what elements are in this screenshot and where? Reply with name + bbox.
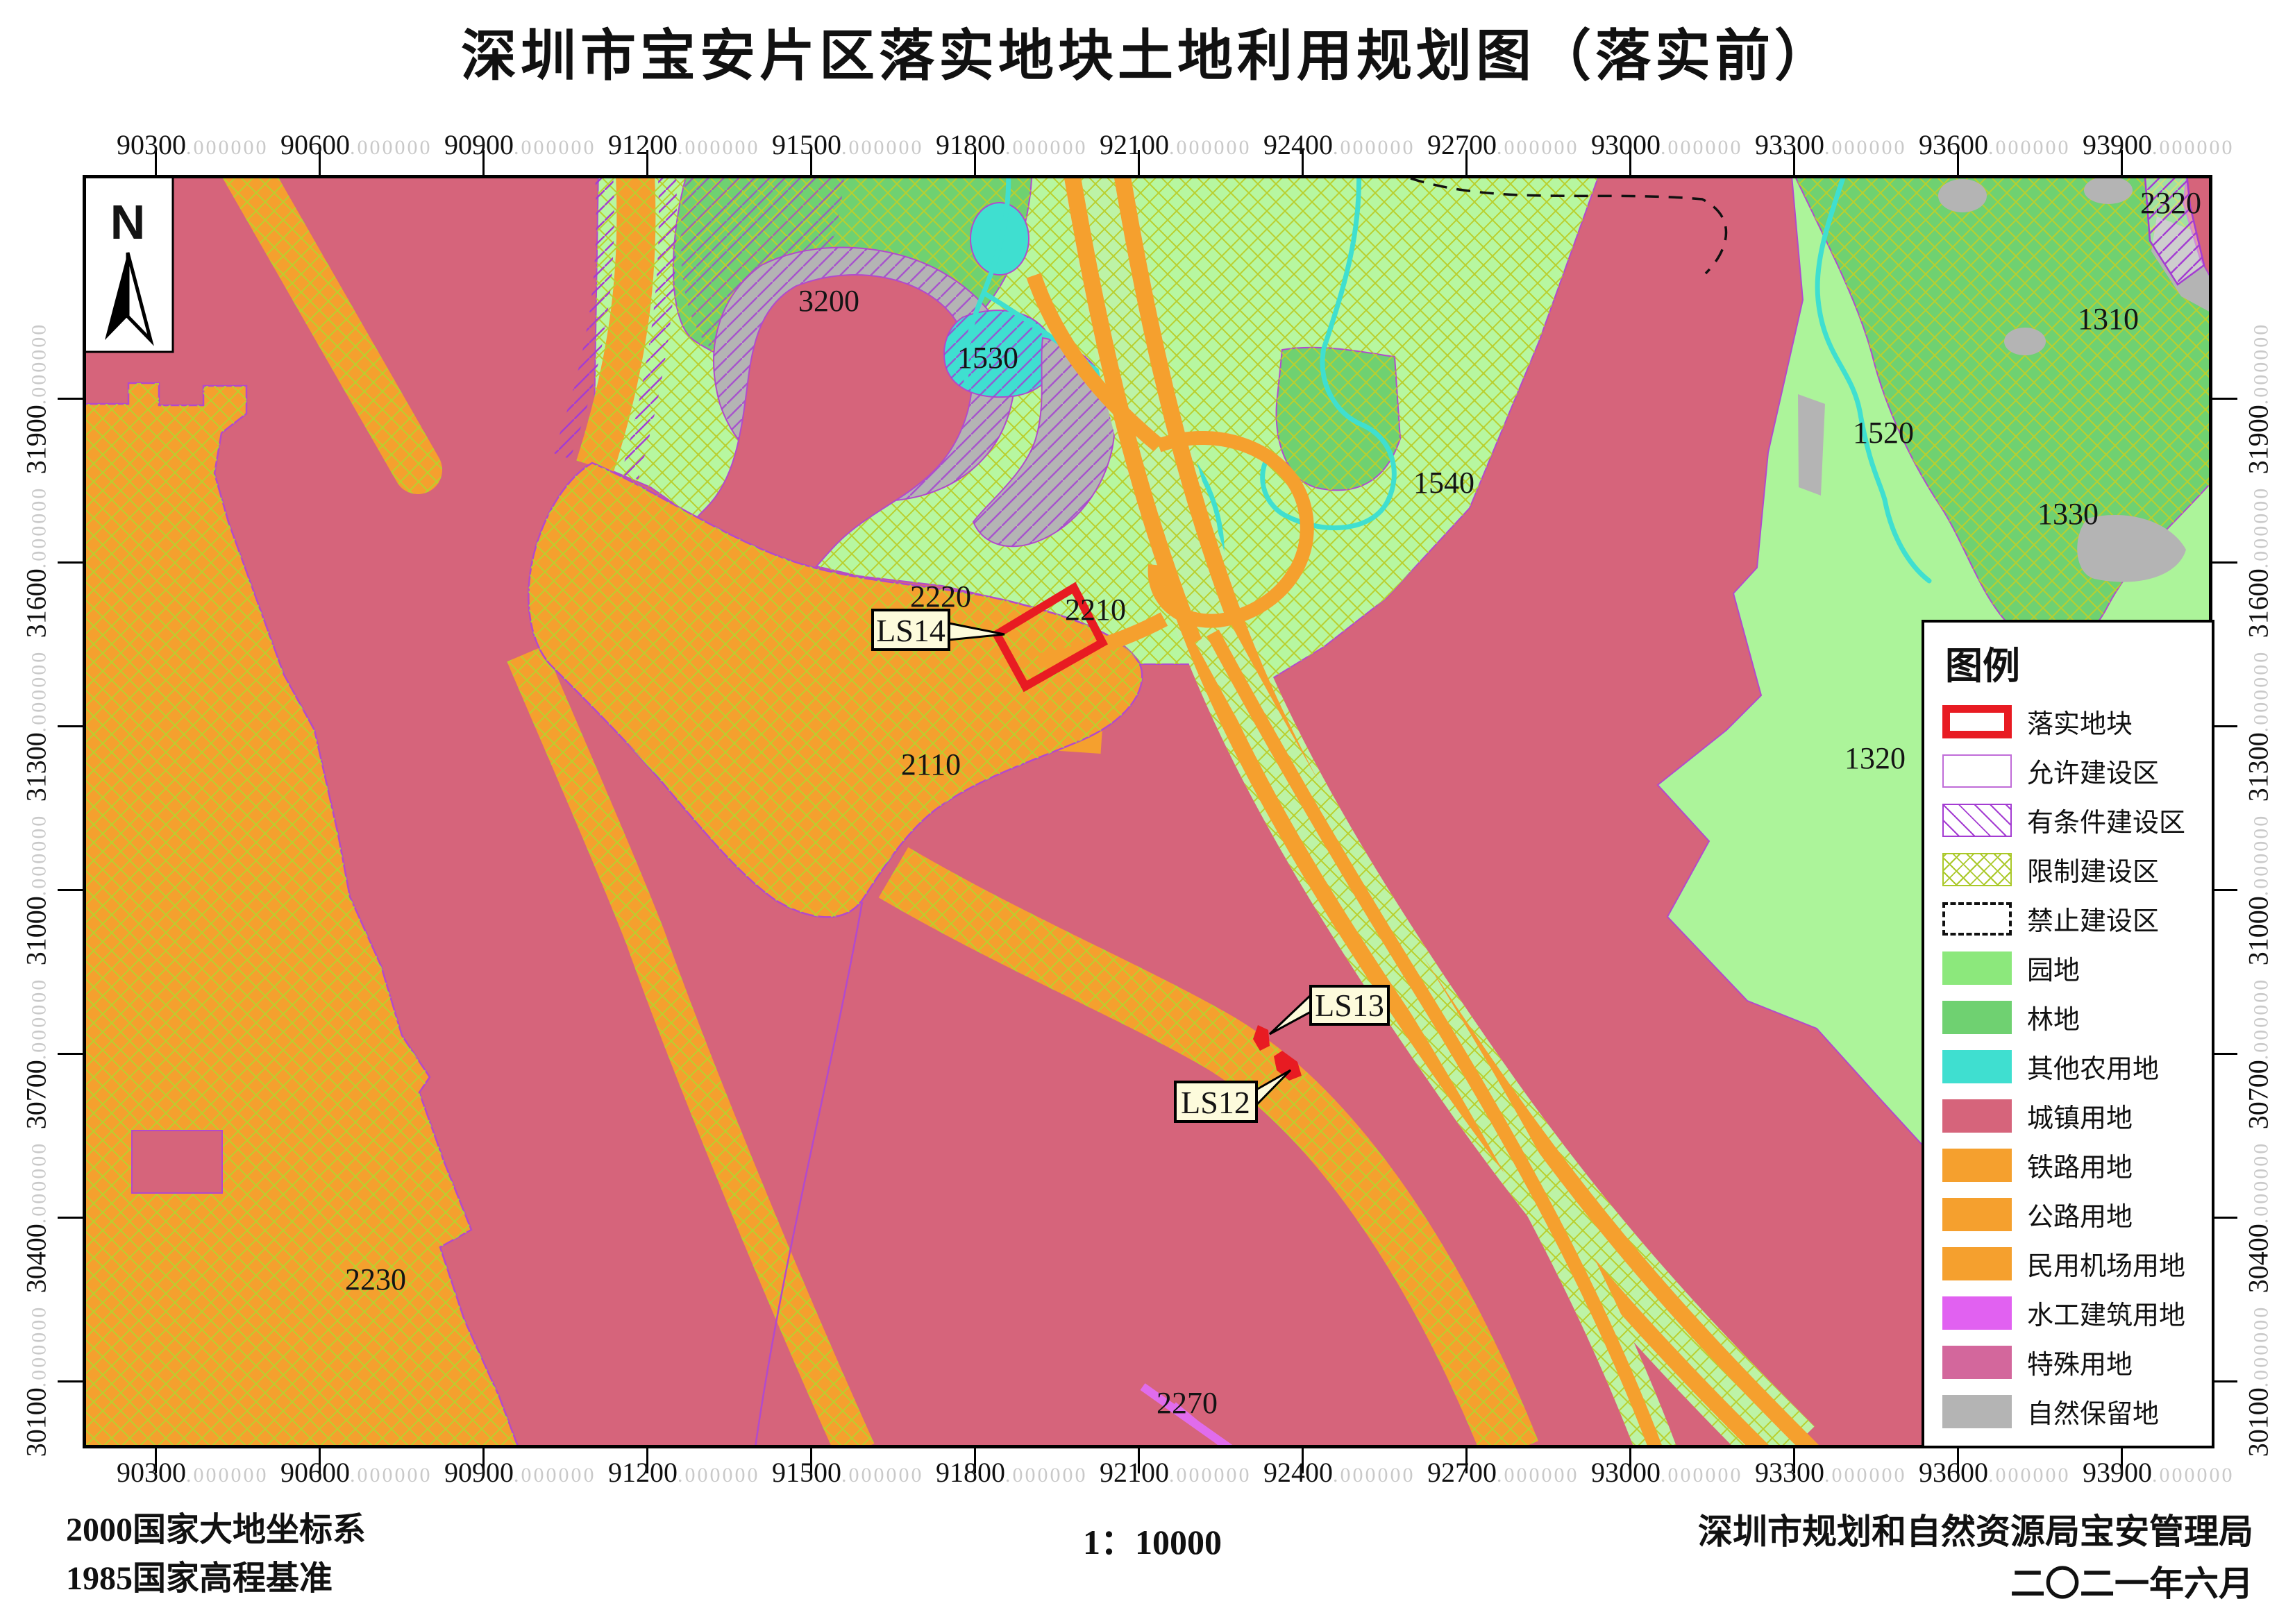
publish-date: 二〇二一年六月	[1698, 1558, 2253, 1610]
callout-ls14-label: LS14	[876, 613, 945, 648]
legend-swatch-red-outline	[1942, 705, 2012, 738]
plan-sheet: 深圳市宝安片区落实地块土地利用规划图（落实前）	[0, 0, 2295, 1624]
x-axis-label: 93000.000000	[1591, 1456, 1743, 1489]
x-axis-label: 90300.000000	[117, 128, 269, 161]
y-tick	[58, 1217, 83, 1219]
x-axis-label: 93300.000000	[1755, 1456, 1907, 1489]
x-axis-label: 93300.000000	[1755, 128, 1907, 161]
x-axis-label: 92700.000000	[1427, 1456, 1579, 1489]
x-axis-label: 91800.000000	[936, 1456, 1088, 1489]
x-axis-label: 93000.000000	[1591, 128, 1743, 161]
y-axis-label: 31000.000000	[20, 814, 53, 966]
x-axis-label: 90300.000000	[117, 1456, 269, 1489]
y-axis-label: 30400.000000	[2242, 1142, 2275, 1294]
legend-item-highway: 公路用地	[1942, 1190, 2212, 1239]
legend-swatch-purple-hatch	[1942, 804, 2012, 837]
area-label-1310: 1310	[2078, 302, 2139, 336]
x-axis-label: 90600.000000	[280, 1456, 432, 1489]
y-axis-label: 31600.000000	[2242, 487, 2275, 638]
x-axis-label: 90900.000000	[444, 1456, 596, 1489]
y-tick	[2212, 561, 2237, 564]
legend-item-natural-reserve: 自然保留地	[1942, 1387, 2212, 1436]
y-axis-label: 31300.000000	[2242, 650, 2275, 802]
x-axis-label: 92700.000000	[1427, 128, 1579, 161]
map-canvas: 3200 1530 1540 2320 1310 1520 1330 1320 …	[83, 175, 2212, 1448]
y-tick	[2212, 1053, 2237, 1055]
legend-swatch-hydraulic	[1942, 1296, 2012, 1330]
area-label-2110: 2110	[901, 747, 961, 781]
legend-swatch-highway	[1942, 1198, 2012, 1231]
legend-swatch-orchard	[1942, 951, 2012, 985]
x-axis-label: 92400.000000	[1263, 128, 1415, 161]
legend-item-implementation-plot: 落实地块	[1942, 697, 2212, 746]
legend-swatch-green-crosshatch	[1942, 853, 2012, 886]
x-axis-label: 91200.000000	[608, 128, 760, 161]
legend-item-allowed-zone: 允许建设区	[1942, 746, 2212, 795]
area-label-1520: 1520	[1853, 416, 1914, 450]
legend-swatch-other-agricultural	[1942, 1050, 2012, 1083]
y-axis-label: 31900.000000	[2242, 323, 2275, 475]
legend-item-conditional-zone: 有条件建设区	[1942, 795, 2212, 845]
north-arrow: N	[83, 175, 173, 352]
y-axis-label: 31000.000000	[2242, 814, 2275, 966]
north-arrow-label: N	[110, 195, 146, 249]
x-axis-label: 93900.000000	[2083, 128, 2235, 161]
y-axis-label: 30400.000000	[20, 1142, 53, 1294]
area-label-2270: 2270	[1157, 1386, 1218, 1420]
y-axis-label: 30100.000000	[2242, 1305, 2275, 1457]
x-axis-label: 91200.000000	[608, 1456, 760, 1489]
legend-item-other-agricultural: 其他农用地	[1942, 1042, 2212, 1091]
agency-block: 深圳市规划和自然资源局宝安管理局 二〇二一年六月	[1698, 1506, 2253, 1610]
legend-swatch-dashed-outline	[1942, 902, 2012, 936]
agency-name: 深圳市规划和自然资源局宝安管理局	[1698, 1506, 2253, 1558]
y-axis-label: 30100.000000	[20, 1305, 53, 1457]
x-axis-label: 90600.000000	[280, 128, 432, 161]
datum-line2: 1985国家高程基准	[66, 1555, 366, 1603]
y-axis-label: 31600.000000	[20, 487, 53, 638]
x-axis-label: 93600.000000	[1919, 128, 2071, 161]
area-label-2220: 2220	[910, 580, 971, 614]
x-axis-label: 93600.000000	[1919, 1456, 2071, 1489]
callout-ls13-label: LS13	[1315, 988, 1384, 1023]
legend-item-forest: 林地	[1942, 992, 2212, 1042]
legend-swatch-natural-reserve	[1942, 1395, 2012, 1428]
y-tick	[2212, 889, 2237, 891]
map-scale: 1：10000	[1083, 1514, 1222, 1564]
y-tick	[58, 1053, 83, 1055]
page-title: 深圳市宝安片区落实地块土地利用规划图（落实前）	[0, 11, 2295, 92]
legend-swatch-special-use	[1942, 1346, 2012, 1379]
y-tick	[58, 398, 83, 400]
legend-item-orchard: 园地	[1942, 943, 2212, 992]
y-tick	[2212, 725, 2237, 727]
legend-swatch-forest	[1942, 1001, 2012, 1034]
legend-item-civil-airport: 民用机场用地	[1942, 1239, 2212, 1288]
y-tick	[58, 889, 83, 891]
y-tick	[58, 561, 83, 564]
x-axis-label: 92100.000000	[1100, 1456, 1252, 1489]
x-axis-label: 92400.000000	[1263, 1456, 1415, 1489]
y-axis-label: 30700.000000	[20, 978, 53, 1130]
legend-swatch-civil-airport	[1942, 1247, 2012, 1280]
legend: 图例 落实地块 允许建设区 有条件建设区 限制建设区 禁止建设区 园地 林地 其…	[1922, 620, 2214, 1448]
legend-item-prohibited-zone: 禁止建设区	[1942, 894, 2212, 943]
x-axis-label: 93900.000000	[2083, 1456, 2235, 1489]
x-axis-label: 92100.000000	[1100, 128, 1252, 161]
area-label-3200: 3200	[798, 284, 859, 318]
legend-item-urban: 城镇用地	[1942, 1091, 2212, 1140]
area-label-2320: 2320	[2140, 186, 2201, 220]
area-label-2210: 2210	[1065, 593, 1126, 627]
callout-ls12-label: LS12	[1181, 1085, 1250, 1120]
y-tick	[2212, 1380, 2237, 1382]
legend-item-special-use: 特殊用地	[1942, 1337, 2212, 1387]
area-label-1540: 1540	[1413, 466, 1474, 500]
area-label-1330: 1330	[2037, 497, 2099, 531]
y-axis-label: 31300.000000	[20, 650, 53, 802]
y-tick	[2212, 398, 2237, 400]
x-axis-label: 91500.000000	[772, 128, 924, 161]
legend-swatch-railway	[1942, 1149, 2012, 1182]
y-tick	[58, 1380, 83, 1382]
x-axis-label: 90900.000000	[444, 128, 596, 161]
area-label-1530: 1530	[957, 341, 1018, 375]
area-label-1320: 1320	[1844, 741, 1906, 775]
datum-block: 2000国家大地坐标系 1985国家高程基准	[66, 1506, 366, 1602]
x-axis-label: 91500.000000	[772, 1456, 924, 1489]
x-axis-label: 91800.000000	[936, 128, 1088, 161]
datum-line1: 2000国家大地坐标系	[66, 1506, 366, 1555]
y-tick	[58, 725, 83, 727]
y-axis-label: 31900.000000	[20, 323, 53, 475]
legend-swatch-urban	[1942, 1099, 2012, 1133]
legend-swatch-purple-outline	[1942, 754, 2012, 788]
area-label-2230: 2230	[345, 1262, 406, 1296]
map-layers: 3200 1530 1540 2320 1310 1520 1330 1320 …	[83, 175, 2212, 1448]
y-axis-label: 30700.000000	[2242, 978, 2275, 1130]
y-tick	[2212, 1217, 2237, 1219]
legend-item-hydraulic: 水工建筑用地	[1942, 1288, 2212, 1337]
legend-item-restricted-zone: 限制建设区	[1942, 845, 2212, 894]
legend-item-railway: 铁路用地	[1942, 1140, 2212, 1190]
legend-title: 图例	[1945, 635, 2212, 690]
